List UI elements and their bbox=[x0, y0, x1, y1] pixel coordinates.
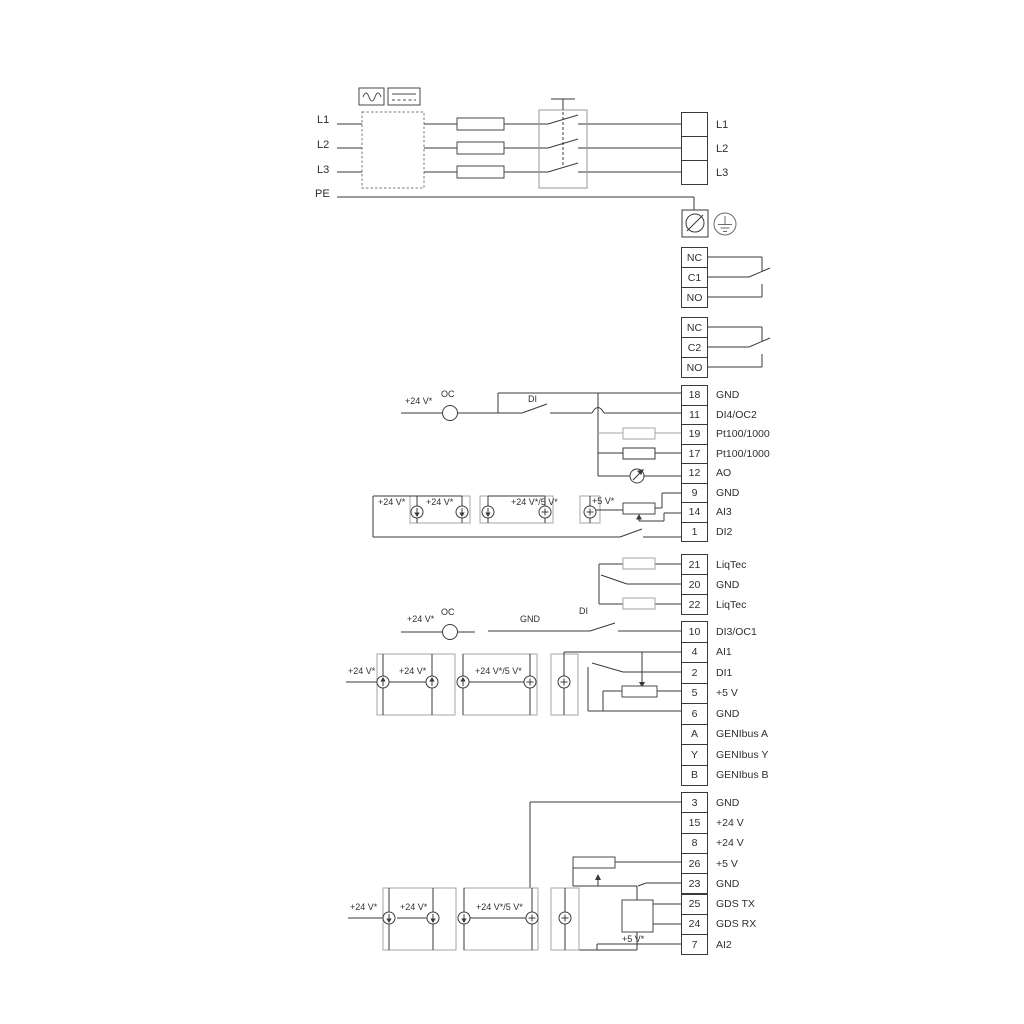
terminal-label: DI2 bbox=[716, 522, 732, 543]
ai1-wiring bbox=[346, 652, 681, 715]
ai2-wiper-arrow bbox=[595, 874, 601, 880]
terminal-cell bbox=[681, 160, 708, 185]
terminal-row-23: 23 GND bbox=[681, 873, 739, 894]
terminal-number: 22 bbox=[681, 594, 708, 615]
terminal-label: LiqTec bbox=[716, 554, 746, 575]
io-group3-wiring bbox=[530, 802, 681, 950]
di2-switch bbox=[373, 529, 681, 537]
ai1-potentiometer bbox=[622, 686, 657, 697]
terminal-number: 2 bbox=[681, 662, 708, 684]
terminal-number: 6 bbox=[681, 703, 708, 725]
emc-filter-box bbox=[362, 112, 424, 188]
terminal-label: L1 bbox=[716, 112, 728, 137]
power-line-label-l3: L3 bbox=[317, 164, 329, 176]
terminal-row-1: 1 DI2 bbox=[681, 522, 732, 543]
terminal-label: GDS RX bbox=[716, 914, 756, 935]
relay-contact-2 bbox=[708, 327, 770, 367]
terminal-label: AI2 bbox=[716, 934, 732, 955]
annotation-24v: +24 V* bbox=[426, 497, 453, 507]
terminal-row-mains-l2: L2 bbox=[681, 136, 728, 161]
terminal-row-relay2-no: NO bbox=[681, 357, 708, 378]
liqtec-wiring bbox=[599, 558, 681, 609]
terminal-row-relay1-c1: C1 bbox=[681, 267, 708, 288]
terminal-label: AI3 bbox=[716, 502, 732, 523]
terminal-row-21: 21 LiqTec bbox=[681, 554, 746, 575]
terminal-row-relay1-nc: NC bbox=[681, 247, 708, 268]
terminal-cell bbox=[681, 112, 708, 137]
annotation-di: DI bbox=[528, 394, 537, 404]
terminal-label: GND bbox=[716, 873, 739, 894]
terminal-label: AI1 bbox=[716, 642, 732, 664]
terminal-label: GENIbus A bbox=[716, 724, 768, 746]
ai3-current-sources bbox=[411, 506, 596, 518]
terminal-label: GND bbox=[716, 792, 739, 813]
di3-switch bbox=[488, 623, 681, 631]
terminal-label: AO bbox=[716, 463, 731, 484]
terminal-label: GENIbus B bbox=[716, 765, 769, 787]
terminal-row-9: 9 GND bbox=[681, 483, 739, 504]
terminal-row-7: 7 AI2 bbox=[681, 934, 732, 955]
analog-output-meter-icon bbox=[630, 469, 644, 483]
dc-symbol-icon bbox=[388, 88, 420, 105]
wire-jump bbox=[592, 408, 681, 414]
annotation-24v: +24 V* bbox=[407, 614, 434, 624]
terminal-label: Pt100/1000 bbox=[716, 444, 770, 465]
terminal-number: 5 bbox=[681, 683, 708, 705]
terminal-number: NO bbox=[681, 357, 708, 378]
ac-symbol-icon bbox=[359, 88, 384, 105]
terminal-label: +24 V bbox=[716, 812, 744, 833]
terminal-row-6: 6 GND bbox=[681, 703, 739, 725]
terminal-number: A bbox=[681, 724, 708, 746]
terminal-number: 11 bbox=[681, 405, 708, 426]
terminal-row-24: 24 GDS RX bbox=[681, 914, 756, 935]
terminal-cell bbox=[681, 136, 708, 161]
terminal-number: 9 bbox=[681, 483, 708, 504]
terminal-number: 12 bbox=[681, 463, 708, 484]
terminal-label: GDS TX bbox=[716, 894, 755, 915]
pe-terminal-icon bbox=[682, 210, 708, 237]
terminal-row-y: Y GENIbus Y bbox=[681, 744, 768, 766]
annotation-oc: OC bbox=[441, 389, 455, 399]
terminal-label: L2 bbox=[716, 136, 728, 161]
annotation-24v-5v: +24 V*/5 V* bbox=[511, 497, 558, 507]
terminal-label: +5 V bbox=[716, 853, 738, 874]
gds-sensor-box bbox=[622, 900, 653, 932]
terminal-label: GND bbox=[716, 385, 739, 406]
terminal-row-18: 18 GND bbox=[681, 385, 739, 406]
terminal-number: 19 bbox=[681, 424, 708, 445]
terminal-number: 20 bbox=[681, 574, 708, 595]
terminal-label: DI4/OC2 bbox=[716, 405, 757, 426]
terminal-row-2: 2 DI1 bbox=[681, 662, 732, 684]
pt100-resistor bbox=[598, 428, 681, 459]
power-line-label-l1: L1 bbox=[317, 114, 329, 126]
ai3-potentiometer bbox=[623, 503, 655, 521]
terminal-number: 3 bbox=[681, 792, 708, 813]
terminal-number: B bbox=[681, 765, 708, 787]
annotation-24v: +24 V* bbox=[378, 497, 405, 507]
terminal-label: DI3/OC1 bbox=[716, 621, 757, 643]
terminal-label: +5 V bbox=[716, 683, 738, 705]
terminal-number: 7 bbox=[681, 934, 708, 955]
terminal-row-4: 4 AI1 bbox=[681, 642, 732, 664]
terminal-label: Pt100/1000 bbox=[716, 424, 770, 445]
terminal-number: C2 bbox=[681, 337, 708, 358]
terminal-row-26: 26 +5 V bbox=[681, 853, 738, 874]
terminal-label: GND bbox=[716, 574, 739, 595]
annotation-5v: +5 V* bbox=[622, 934, 644, 944]
terminal-number: 18 bbox=[681, 385, 708, 406]
annotation-di: DI bbox=[579, 606, 588, 616]
terminal-row-17: 17 Pt100/1000 bbox=[681, 444, 770, 465]
terminal-number: 8 bbox=[681, 833, 708, 854]
wiring-diagram: L1 L2 L3 PE L1 L2 L3 NC C1 NO NC C2 NO 1… bbox=[0, 0, 1024, 1024]
terminal-row-15: 15 +24 V bbox=[681, 812, 744, 833]
liqtec-resistor bbox=[623, 558, 655, 569]
terminal-label: +24 V bbox=[716, 833, 744, 854]
terminal-row-relay1-no: NO bbox=[681, 287, 708, 308]
terminal-number: 10 bbox=[681, 621, 708, 643]
earth-ground-icon bbox=[714, 213, 736, 235]
terminal-number: 26 bbox=[681, 853, 708, 874]
terminal-row-a: A GENIbus A bbox=[681, 724, 768, 746]
terminal-label: LiqTec bbox=[716, 594, 746, 615]
terminal-number: 14 bbox=[681, 502, 708, 523]
terminal-number: Y bbox=[681, 744, 708, 766]
power-line-label-l2: L2 bbox=[317, 139, 329, 151]
terminal-row-5: 5 +5 V bbox=[681, 683, 738, 705]
mains-wires bbox=[337, 124, 694, 210]
ai1-option-frames bbox=[377, 654, 578, 715]
terminal-number: 25 bbox=[681, 894, 708, 915]
terminal-row-relay2-nc: NC bbox=[681, 317, 708, 338]
terminal-number: NC bbox=[681, 317, 708, 338]
terminal-number: C1 bbox=[681, 267, 708, 288]
annotation-24v-5v: +24 V*/5 V* bbox=[475, 666, 522, 676]
annotation-oc: OC bbox=[441, 607, 455, 617]
terminal-row-14: 14 AI3 bbox=[681, 502, 732, 523]
terminal-label: L3 bbox=[716, 160, 728, 185]
terminal-number: 4 bbox=[681, 642, 708, 664]
annotation-gnd: GND bbox=[520, 614, 540, 624]
open-collector-icon bbox=[443, 625, 458, 640]
terminal-number: 15 bbox=[681, 812, 708, 833]
annotation-24v: +24 V* bbox=[348, 666, 375, 676]
terminal-number: 24 bbox=[681, 914, 708, 935]
terminal-row-mains-l3: L3 bbox=[681, 160, 728, 185]
terminal-label: DI1 bbox=[716, 662, 732, 684]
ai2-option-frames bbox=[383, 888, 579, 950]
terminal-number: 17 bbox=[681, 444, 708, 465]
terminal-row-3: 3 GND bbox=[681, 792, 739, 813]
terminal-row-19: 19 Pt100/1000 bbox=[681, 424, 770, 445]
terminal-row-20: 20 GND bbox=[681, 574, 739, 595]
annotation-24v: +24 V* bbox=[405, 396, 432, 406]
relay-contact-1 bbox=[708, 257, 770, 297]
terminal-label: GND bbox=[716, 483, 739, 504]
terminal-row-8: 8 +24 V bbox=[681, 833, 744, 854]
terminal-row-relay2-c2: C2 bbox=[681, 337, 708, 358]
terminal-label: GND bbox=[716, 703, 739, 725]
terminal-number: 23 bbox=[681, 873, 708, 894]
terminal-number: NC bbox=[681, 247, 708, 268]
terminal-row-10: 10 DI3/OC1 bbox=[681, 621, 757, 643]
ai2-potentiometer bbox=[573, 857, 615, 868]
terminal-row-mains-l1: L1 bbox=[681, 112, 728, 137]
annotation-24v: +24 V* bbox=[399, 666, 426, 676]
wiring-linework bbox=[0, 0, 1024, 1024]
terminal-row-11: 11 DI4/OC2 bbox=[681, 405, 757, 426]
main-switch bbox=[539, 99, 587, 188]
fuses bbox=[457, 118, 504, 178]
terminal-number: 21 bbox=[681, 554, 708, 575]
liqtec-resistor bbox=[623, 598, 655, 609]
terminal-number: 1 bbox=[681, 522, 708, 543]
terminal-row-22: 22 LiqTec bbox=[681, 594, 746, 615]
power-line-label-pe: PE bbox=[315, 188, 330, 200]
annotation-24v: +24 V* bbox=[400, 902, 427, 912]
terminal-row-25: 25 GDS TX bbox=[681, 894, 755, 915]
terminal-label: GENIbus Y bbox=[716, 744, 768, 766]
annotation-24v: +24 V* bbox=[350, 902, 377, 912]
terminal-row-12: 12 AO bbox=[681, 463, 731, 484]
annotation-24v-5v: +24 V*/5 V* bbox=[476, 902, 523, 912]
annotation-5v: +5 V* bbox=[592, 496, 614, 506]
open-collector-icon bbox=[443, 406, 458, 421]
terminal-row-b: B GENIbus B bbox=[681, 765, 769, 787]
terminal-number: NO bbox=[681, 287, 708, 308]
